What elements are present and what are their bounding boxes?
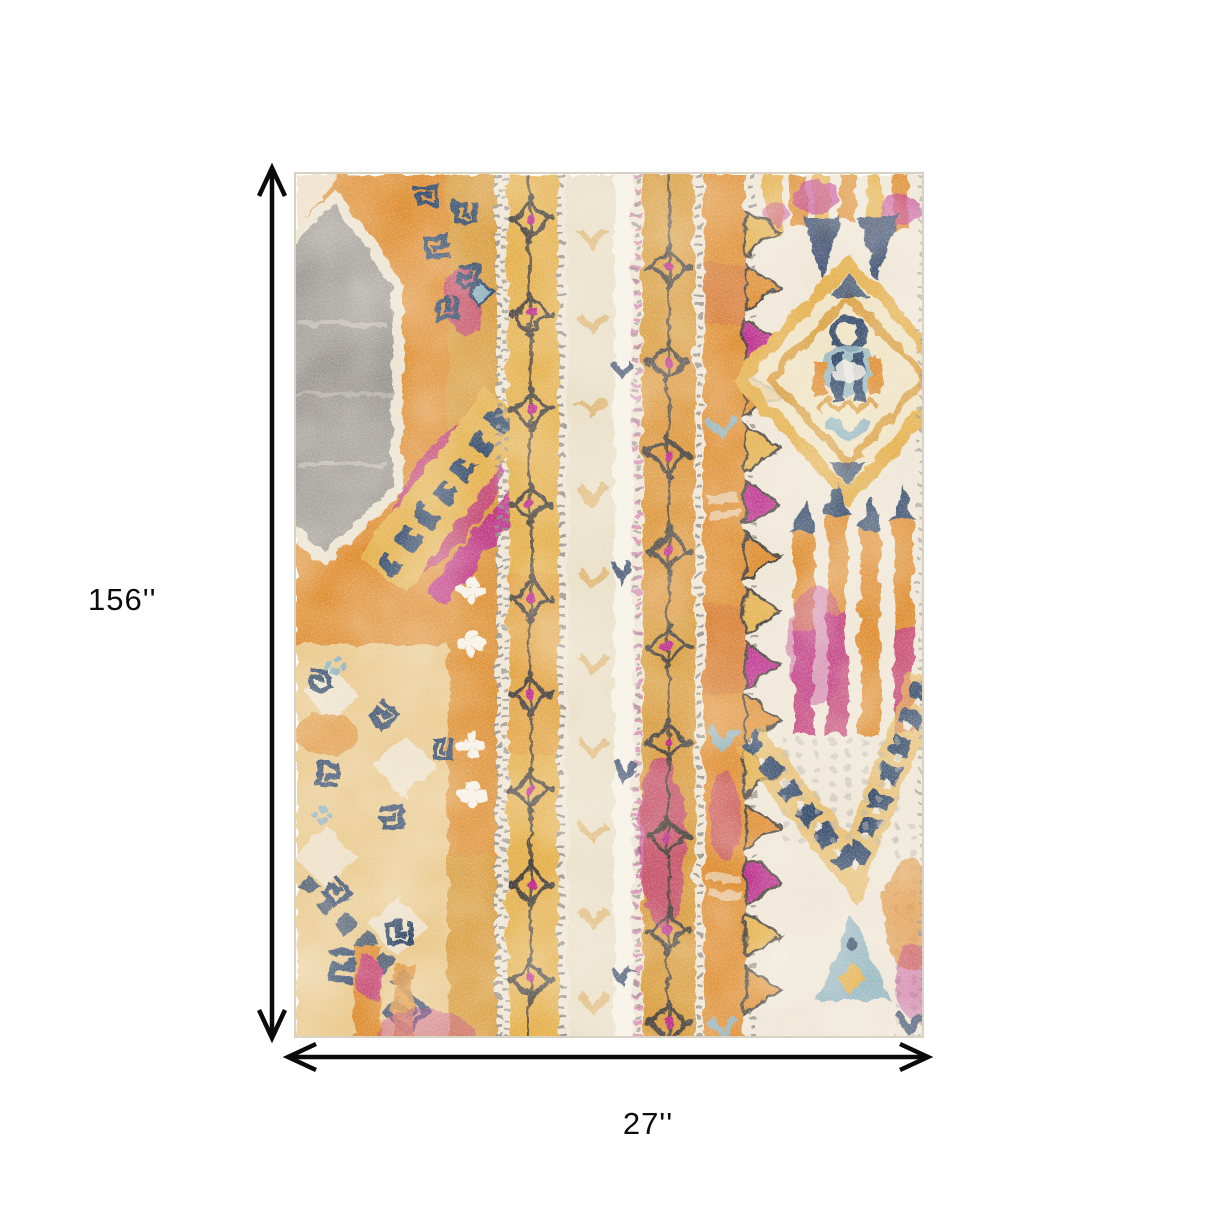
- height-dimension-arrow: [250, 160, 294, 1046]
- distress-grain-overlay: [294, 172, 924, 1038]
- width-dimension-arrow: [282, 1035, 934, 1079]
- height-dimension-label: 156'': [88, 582, 188, 618]
- width-dimension-label: 27'': [598, 1106, 698, 1142]
- rug-photo: [294, 172, 924, 1038]
- product-dimension-image: 156'' 27'': [0, 0, 1213, 1213]
- rug-illustration: [294, 172, 924, 1038]
